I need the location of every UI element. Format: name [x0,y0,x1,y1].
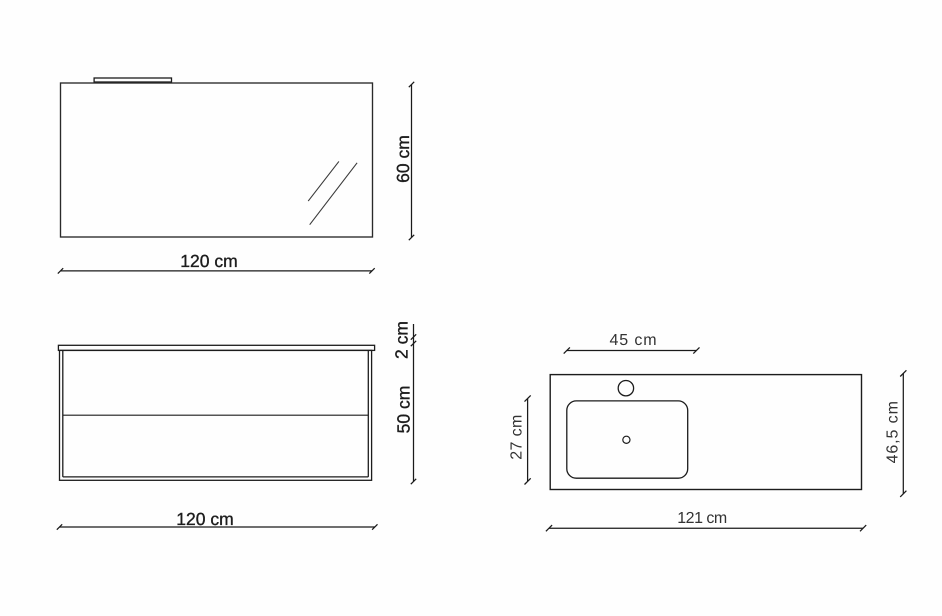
svg-text:27 cm: 27 cm [508,414,525,460]
svg-text:50 cm: 50 cm [394,386,414,434]
svg-text:121 cm: 121 cm [677,510,727,527]
svg-text:120 cm: 120 cm [180,251,237,271]
svg-text:2 cm: 2 cm [392,321,412,359]
svg-text:45 cm: 45 cm [609,332,657,349]
svg-text:46,5 cm: 46,5 cm [884,400,901,463]
svg-text:60 cm: 60 cm [393,135,413,183]
svg-text:120 cm: 120 cm [176,509,233,529]
